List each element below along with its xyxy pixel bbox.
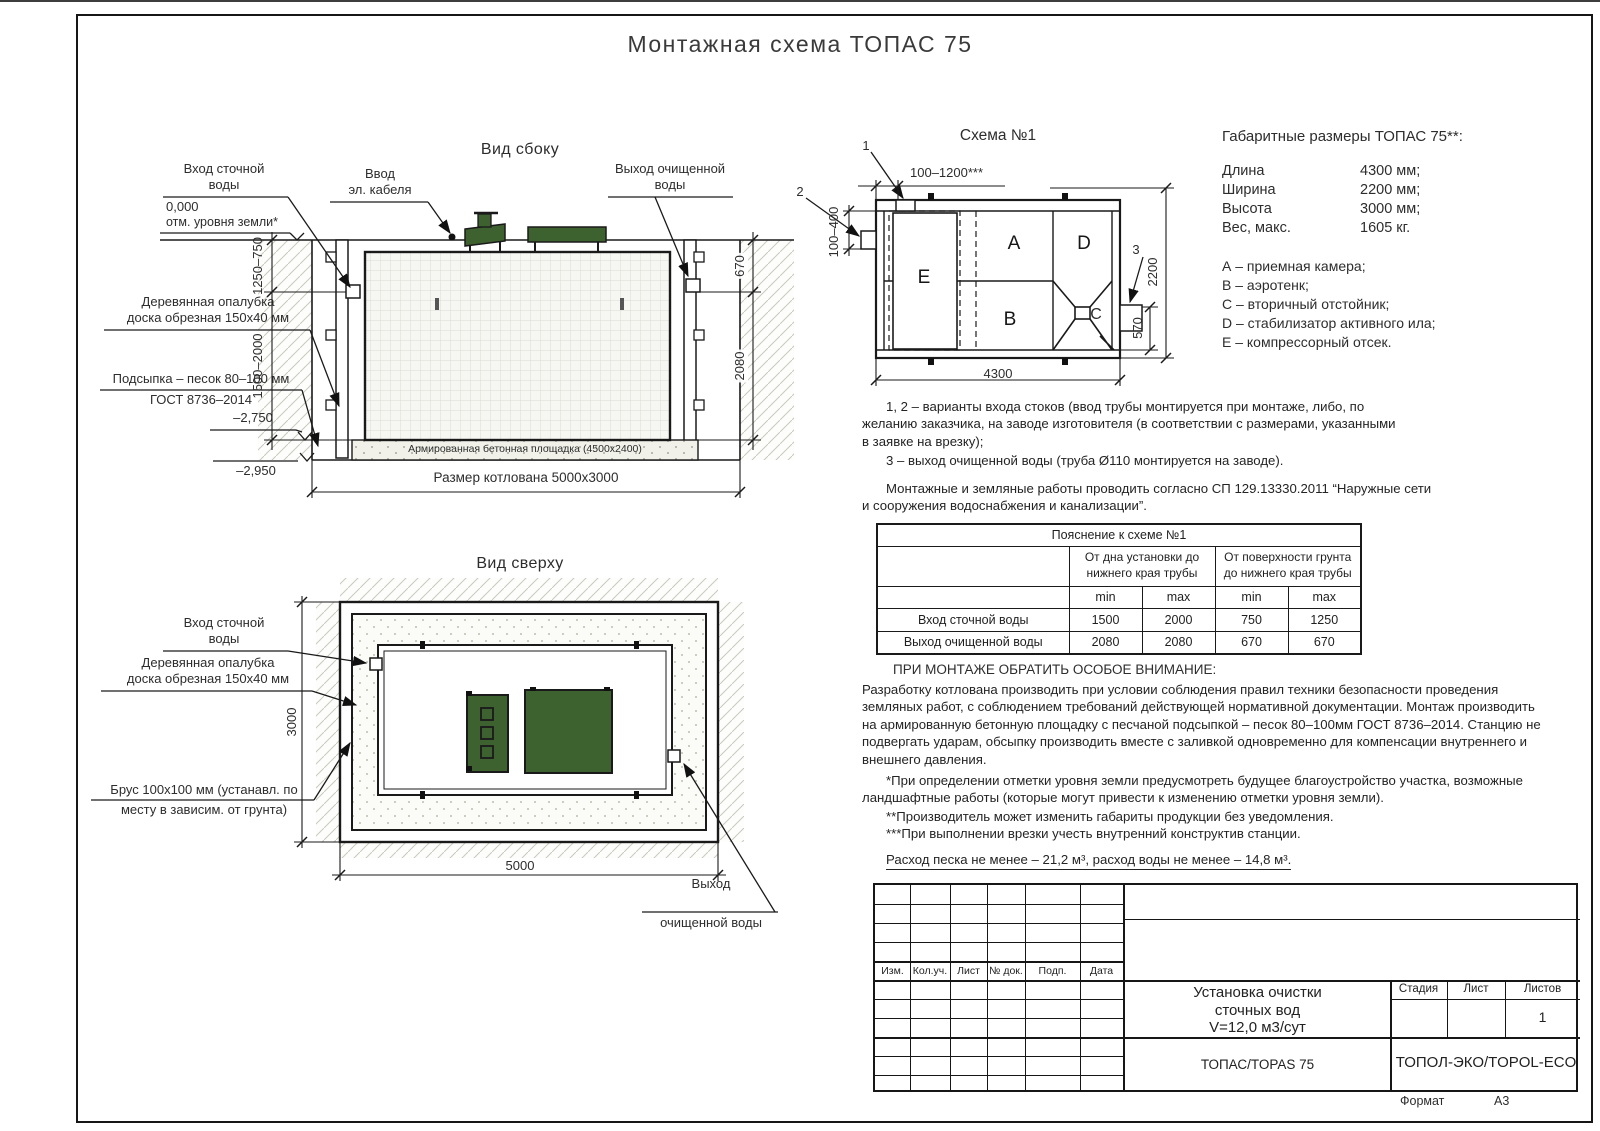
legend-item: Е – компрессорный отсек. bbox=[1222, 334, 1552, 351]
side-sand-label-1: Подсыпка – песок 80–100 мм bbox=[98, 371, 304, 387]
table-row-label: Вход сточной воды bbox=[877, 608, 1069, 631]
stamp-line bbox=[910, 885, 911, 1090]
company-name: ТОПОЛ-ЭКО/TOPOL-ECO bbox=[1392, 1054, 1580, 1071]
level-zero-note: отм. уровня земли* bbox=[166, 215, 306, 230]
table-cell: 670 bbox=[1288, 631, 1361, 654]
side-inlet-label: Вход сточной воды bbox=[160, 161, 288, 193]
format-value: А3 bbox=[1494, 1094, 1534, 1109]
dim-3000: 3000 bbox=[284, 708, 300, 737]
table-cell: 2080 bbox=[1069, 631, 1142, 654]
table-cell: 2080 bbox=[1142, 631, 1215, 654]
stamp-line bbox=[1390, 999, 1580, 1000]
rev-header-podp: Подп. bbox=[1025, 965, 1080, 977]
table-cell: 1500 bbox=[1069, 608, 1142, 631]
level-minus-2950: –2,950 bbox=[216, 463, 296, 479]
top-inlet-label: Вход сточной воды bbox=[160, 615, 288, 647]
product-name: ТОПАС/TOPAS 75 bbox=[1125, 1057, 1390, 1072]
compartment-b: В bbox=[998, 308, 1022, 331]
spec-label: Вес, макс. bbox=[1222, 220, 1342, 238]
table-cell: 1250 bbox=[1288, 608, 1361, 631]
compartment-a: А bbox=[1002, 232, 1026, 255]
timber-label-2: месту в зависим. от грунта) bbox=[93, 802, 315, 818]
rev-header-izm: Изм. bbox=[875, 965, 910, 977]
slab-label: Армированная бетонная площадка (4500х240… bbox=[360, 443, 690, 456]
sheets-header: Листов bbox=[1505, 983, 1580, 995]
top-outlet-label-2: очищенной воды bbox=[648, 915, 774, 931]
stamp-line bbox=[875, 961, 1123, 963]
dim-100-400: 100–400 bbox=[826, 207, 842, 258]
dim-1250-750: 1250–750 bbox=[250, 237, 266, 295]
pit-size-dim: Размер котлована 5000х3000 bbox=[400, 470, 652, 486]
stamp-line bbox=[1123, 919, 1580, 920]
stamp-line bbox=[875, 999, 1123, 1000]
legend-item: А – приемная камера; bbox=[1222, 258, 1552, 275]
footnote-1: *При определении отметки уровня земли пр… bbox=[862, 772, 1552, 807]
legend-item: В – аэротенк; bbox=[1222, 277, 1552, 294]
dim-4300: 4300 bbox=[958, 366, 1038, 382]
sheets-value: 1 bbox=[1505, 1009, 1580, 1025]
top-formwork-label: Деревянная опалубка доска обрезная 150х4… bbox=[103, 655, 313, 687]
sheet-header: Лист bbox=[1447, 983, 1505, 995]
table-cell: 2000 bbox=[1142, 608, 1215, 631]
level-minus-2750: –2,750 bbox=[213, 410, 293, 426]
side-sand-label-2: ГОСТ 8736–2014 bbox=[98, 392, 304, 408]
rev-header-ndok: № док. bbox=[987, 965, 1025, 977]
stamp-line bbox=[875, 923, 1123, 924]
schema-title: Схема №1 bbox=[918, 127, 1078, 146]
attention-title: ПРИ МОНТАЖЕ ОБРАТИТЬ ОСОБОЕ ВНИМАНИЕ: bbox=[893, 662, 1413, 678]
footnote-2: **Производитель может изменить габариты … bbox=[886, 808, 1506, 825]
format-label: Формат bbox=[1400, 1094, 1470, 1109]
title-block: Изм. Кол.уч. Лист № док. Подп. Дата Уста… bbox=[873, 883, 1578, 1092]
table-cell: 670 bbox=[1215, 631, 1288, 654]
top-view-title: Вид сверху bbox=[455, 554, 585, 574]
spec-label: Длина bbox=[1222, 163, 1342, 181]
side-cable-label: Ввод эл. кабеля bbox=[332, 166, 428, 198]
top-outlet-label-1: Выход bbox=[648, 876, 774, 892]
page-title: Монтажная схема ТОПАС 75 bbox=[600, 30, 1000, 58]
dim-2200: 2200 bbox=[1145, 258, 1161, 287]
callout-2: 2 bbox=[792, 184, 808, 200]
dim-100-1200: 100–1200*** bbox=[910, 165, 1020, 181]
stamp-line bbox=[875, 980, 1580, 982]
side-outlet-label: Выход очищенной воды bbox=[606, 161, 734, 193]
stamp-line bbox=[950, 885, 951, 1090]
table-min: min bbox=[1069, 586, 1142, 608]
stamp-line bbox=[875, 1037, 1580, 1039]
stamp-line bbox=[987, 885, 988, 1090]
doc-title: Установка очистки сточных вод V=12,0 м3/… bbox=[1125, 984, 1390, 1037]
level-zero: 0,000 bbox=[166, 199, 286, 215]
side-formwork-label: Деревянная опалубка доска обрезная 150х4… bbox=[106, 294, 310, 326]
stamp-line bbox=[875, 942, 1123, 943]
stage-header: Стадия bbox=[1390, 983, 1447, 995]
table-row-label: Выход очищенной воды bbox=[877, 631, 1069, 654]
compartment-d: D bbox=[1072, 232, 1096, 255]
table-group1: От дна установки до нижнего края трубы bbox=[1069, 546, 1215, 586]
dim-2080: 2080 bbox=[732, 350, 748, 383]
table-group2: От поверхности грунта до нижнего края тр… bbox=[1215, 546, 1361, 586]
consumption-note: Расход песка не менее – 21,2 м³, расход … bbox=[886, 851, 1291, 870]
spec-value: 2200 мм; bbox=[1360, 182, 1490, 200]
spec-value: 4300 мм; bbox=[1360, 163, 1490, 181]
table-cell: 750 bbox=[1215, 608, 1288, 631]
explanation-table: Пояснение к схеме №1 От дна установки до… bbox=[876, 523, 1362, 655]
rev-header-data: Дата bbox=[1080, 965, 1123, 977]
stamp-line bbox=[875, 1075, 1123, 1076]
stamp-line bbox=[875, 1018, 1123, 1019]
attention-body: Разработку котлована производить при усл… bbox=[862, 681, 1552, 768]
table-corner bbox=[877, 546, 1069, 586]
specs-title: Габаритные размеры ТОПАС 75**: bbox=[1222, 128, 1522, 146]
table-max: max bbox=[1142, 586, 1215, 608]
stamp-line bbox=[875, 904, 1123, 905]
stamp-line bbox=[1025, 885, 1026, 1090]
note-outlet: 3 – выход очищенной воды (труба Ø110 мон… bbox=[886, 452, 1496, 469]
table-empty bbox=[877, 586, 1069, 608]
compartment-e: Е bbox=[912, 266, 936, 289]
dim-1500-2000: 1500–2000 bbox=[250, 333, 266, 398]
side-view-title: Вид сбоку bbox=[455, 140, 585, 160]
rev-header-list: Лист bbox=[950, 965, 987, 977]
legend-item: D – стабилизатор активного ила; bbox=[1222, 315, 1552, 332]
drawing-sheet: Монтажная схема ТОПАС 75 Вид сбоку Вход … bbox=[0, 0, 1600, 1131]
dim-5000: 5000 bbox=[470, 858, 570, 874]
stamp-line bbox=[1080, 885, 1081, 1090]
stamp-line bbox=[875, 1056, 1123, 1057]
timber-label-1: Брус 100х100 мм (устанавл. по bbox=[93, 782, 315, 798]
table-max: max bbox=[1288, 586, 1361, 608]
spec-value: 3000 мм; bbox=[1360, 201, 1490, 219]
callout-3: 3 bbox=[1128, 242, 1144, 258]
compartment-c: С bbox=[1086, 305, 1106, 325]
stamp-line bbox=[1390, 980, 1392, 1090]
rev-header-koluch: Кол.уч. bbox=[910, 965, 950, 977]
dim-570: 570 bbox=[1130, 317, 1146, 339]
table-title: Пояснение к схеме №1 bbox=[877, 524, 1361, 546]
spec-label: Высота bbox=[1222, 201, 1342, 219]
spec-label: Ширина bbox=[1222, 182, 1342, 200]
table-min: min bbox=[1215, 586, 1288, 608]
footnote-3: ***При выполнении врезки учесть внутренн… bbox=[886, 825, 1506, 842]
spec-value: 1605 кг. bbox=[1360, 220, 1490, 238]
note-variants: 1, 2 – варианты входа стоков (ввод трубы… bbox=[862, 398, 1492, 450]
callout-1: 1 bbox=[858, 138, 874, 154]
note-sp: Монтажные и земляные работы проводить со… bbox=[862, 480, 1512, 515]
dim-670: 670 bbox=[732, 253, 748, 279]
legend-item: С – вторичный отстойник; bbox=[1222, 296, 1552, 313]
